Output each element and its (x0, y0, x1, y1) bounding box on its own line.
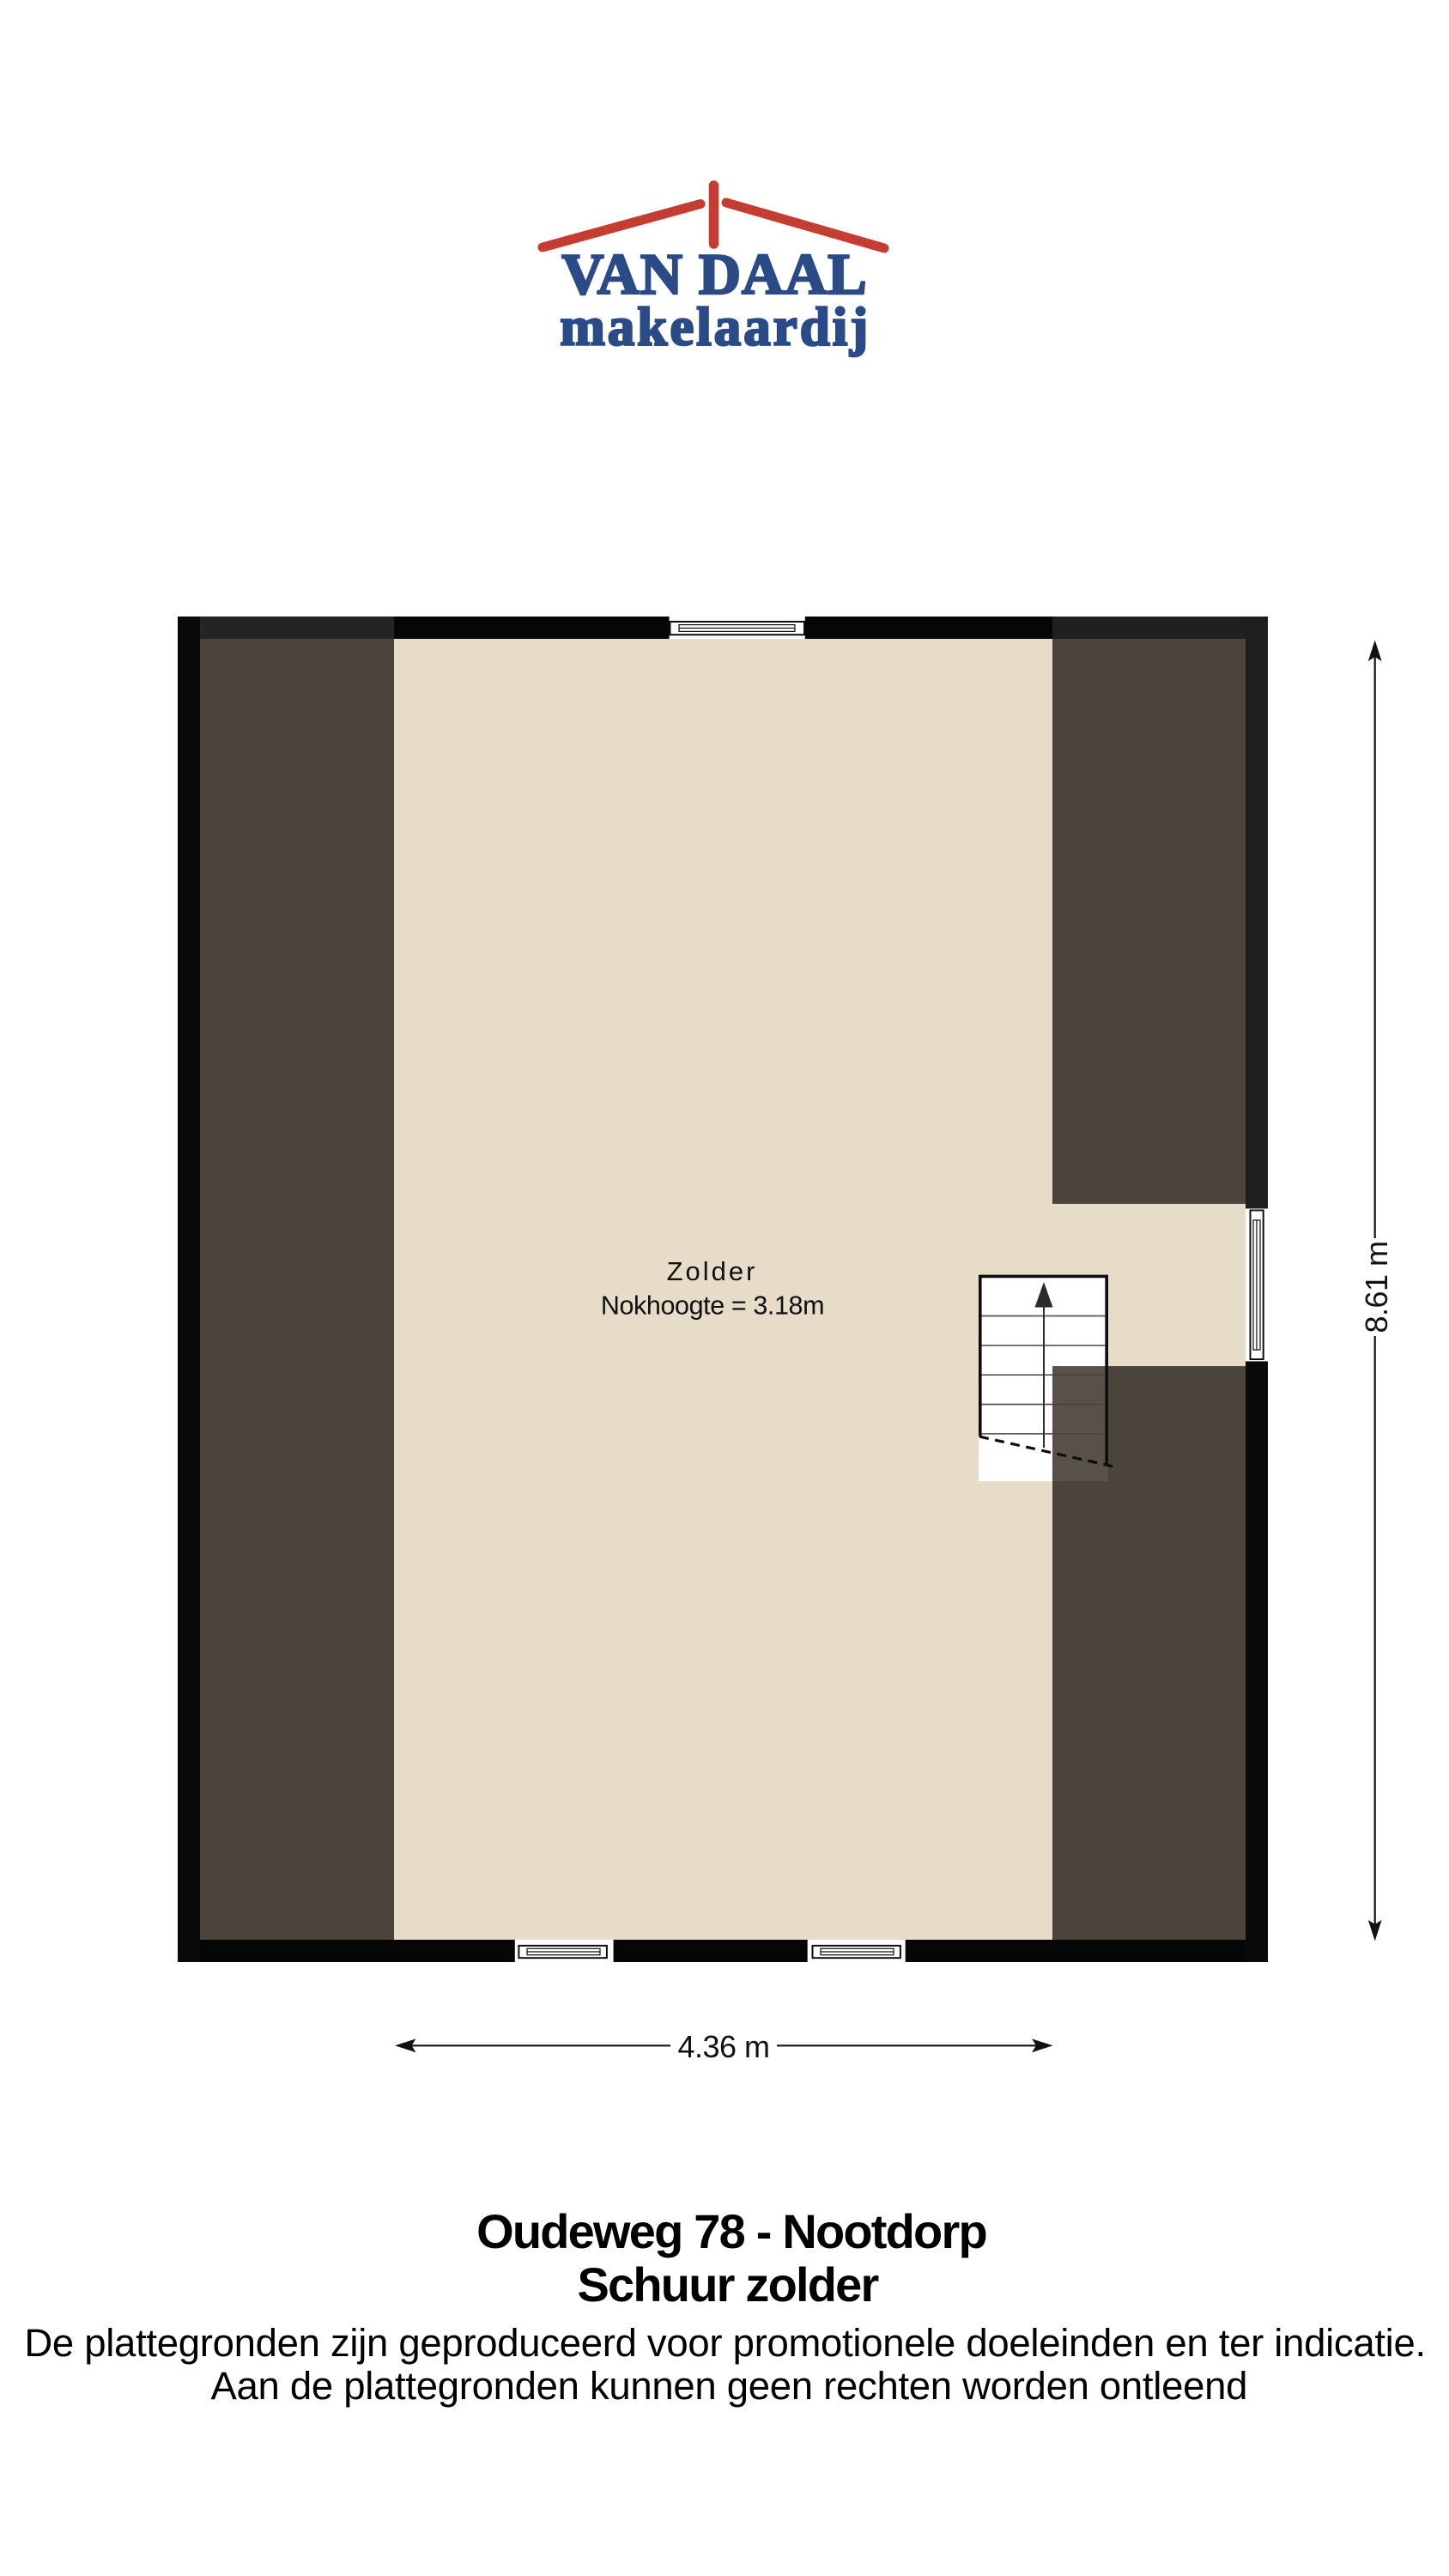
svg-text:Nokhoogte = 3.18m: Nokhoogte = 3.18m (601, 1291, 824, 1321)
svg-text:4.36 m: 4.36 m (677, 2029, 769, 2064)
svg-text:8.61 m: 8.61 m (1359, 1241, 1394, 1333)
svg-text:makelaardij: makelaardij (560, 296, 870, 356)
svg-text:De plattegronden zijn geproduc: De plattegronden zijn geproduceerd voor … (24, 2321, 1426, 2365)
svg-text:Zolder: Zolder (667, 1256, 758, 1286)
svg-text:Schuur zolder: Schuur zolder (578, 2257, 879, 2312)
svg-text:Oudeweg 78 - Nootdorp: Oudeweg 78 - Nootdorp (476, 2204, 986, 2258)
svg-text:Aan de plattegronden kunnen ge: Aan de plattegronden kunnen geen rechten… (210, 2364, 1247, 2408)
